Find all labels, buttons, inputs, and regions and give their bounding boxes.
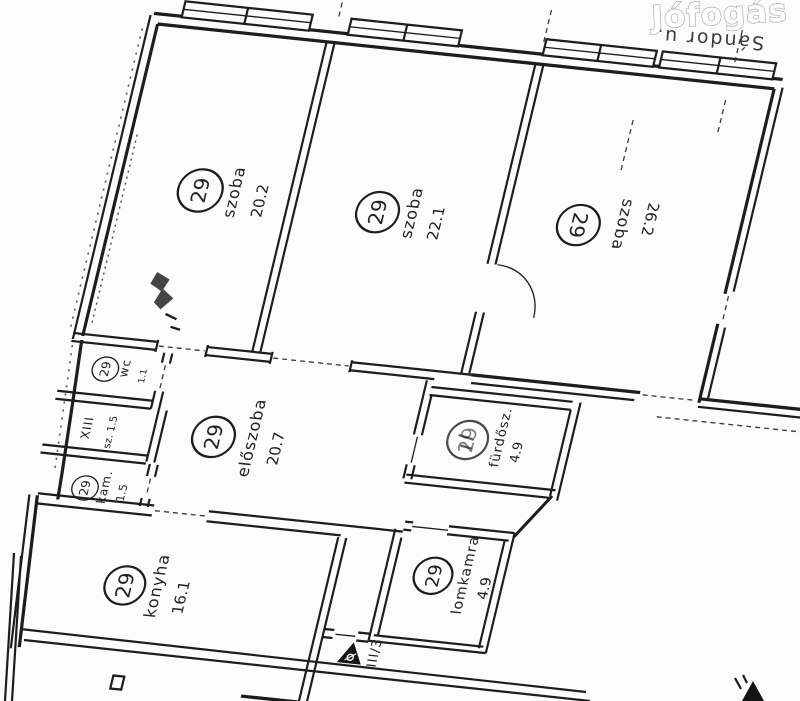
room-wc-label: wc bbox=[116, 358, 134, 378]
room-kamra-label: kam. bbox=[94, 469, 116, 504]
stairwell-label: XIII bbox=[78, 416, 97, 440]
room-lomkamra-unit: 29 bbox=[422, 563, 448, 588]
street-side-wall bbox=[20, 629, 590, 701]
apartment-plan: 29 szoba 20.2 29 szoba 22.1 29 szoba 26.… bbox=[0, 0, 800, 701]
room-szoba1: 29 szoba 20.2 bbox=[173, 160, 277, 221]
window-room3-right bbox=[659, 51, 776, 79]
room-szoba2: 29 szoba 22.1 bbox=[351, 181, 453, 242]
partial-triangle-icon bbox=[742, 681, 764, 701]
stairwell-cell: XIII sz. 1.5 bbox=[76, 413, 120, 450]
room-szoba3-area: 26.2 bbox=[637, 202, 663, 237]
watermark-logo: Jófogás bbox=[649, 0, 789, 36]
room-lomkamra-label: lomkamra bbox=[449, 535, 484, 615]
room-konyha-area: 16.1 bbox=[168, 580, 194, 615]
window-room3-left bbox=[543, 39, 657, 67]
floorplan-canvas: 29 szoba 20.2 29 szoba 22.1 29 szoba 26.… bbox=[0, 0, 800, 701]
room-furdoszoba: 29 fürdősz. 4.9 bbox=[442, 402, 535, 470]
room-furdoszoba-area: 4.9 bbox=[507, 441, 527, 463]
room-furdoszoba-unit: 29 bbox=[453, 426, 483, 454]
scanned-floorplan-page: 29 szoba 20.2 29 szoba 22.1 29 szoba 26.… bbox=[0, 0, 800, 701]
room-kamra-area: 1.5 bbox=[114, 483, 131, 502]
ink-smudge bbox=[145, 272, 179, 311]
room-szoba1-unit: 29 bbox=[186, 177, 216, 205]
room-eloszoba-label: előszoba bbox=[233, 398, 270, 478]
room-lomkamra-area: 4.9 bbox=[475, 576, 496, 600]
door-arc-room3 bbox=[486, 265, 545, 318]
partial-symbol-bottom-right bbox=[735, 675, 764, 701]
room-eloszoba-area: 20.7 bbox=[263, 431, 289, 466]
room-szoba2-area: 22.1 bbox=[423, 206, 449, 241]
stairwell-sublabel: sz. 1.5 bbox=[102, 415, 121, 449]
room-kamra: 29 kam. 1.5 bbox=[69, 467, 134, 507]
room-konyha: 29 konyha 16.1 bbox=[98, 548, 200, 621]
room-eloszoba: 29 előszoba 20.7 bbox=[184, 392, 296, 480]
room-szoba2-unit: 29 bbox=[363, 198, 393, 226]
room-eloszoba-unit: 29 bbox=[199, 423, 229, 451]
entrance-symbol-group: III/3 bbox=[336, 635, 386, 669]
window-room2 bbox=[348, 19, 462, 47]
room-szoba3-label: szoba bbox=[607, 198, 638, 251]
room-wc-unit: 29 bbox=[97, 361, 114, 378]
room-szoba2-label: szoba bbox=[396, 186, 427, 239]
room-wc-area: 1.1 bbox=[137, 369, 150, 384]
outer-walls bbox=[35, 13, 800, 575]
entrance-triangle-icon bbox=[337, 641, 366, 665]
window-room1 bbox=[182, 1, 313, 30]
room-szoba3: 29 szoba 26.2 bbox=[552, 192, 663, 254]
room-kamra-unit: 29 bbox=[76, 480, 93, 497]
interior-walls bbox=[0, 22, 659, 701]
room-szoba3-unit: 29 bbox=[563, 211, 593, 239]
room-wc: 29 wc 1.1 bbox=[90, 356, 152, 386]
room-konyha-unit: 29 bbox=[110, 572, 140, 600]
room-szoba1-area: 20.2 bbox=[247, 183, 273, 218]
column-mark bbox=[110, 675, 124, 689]
